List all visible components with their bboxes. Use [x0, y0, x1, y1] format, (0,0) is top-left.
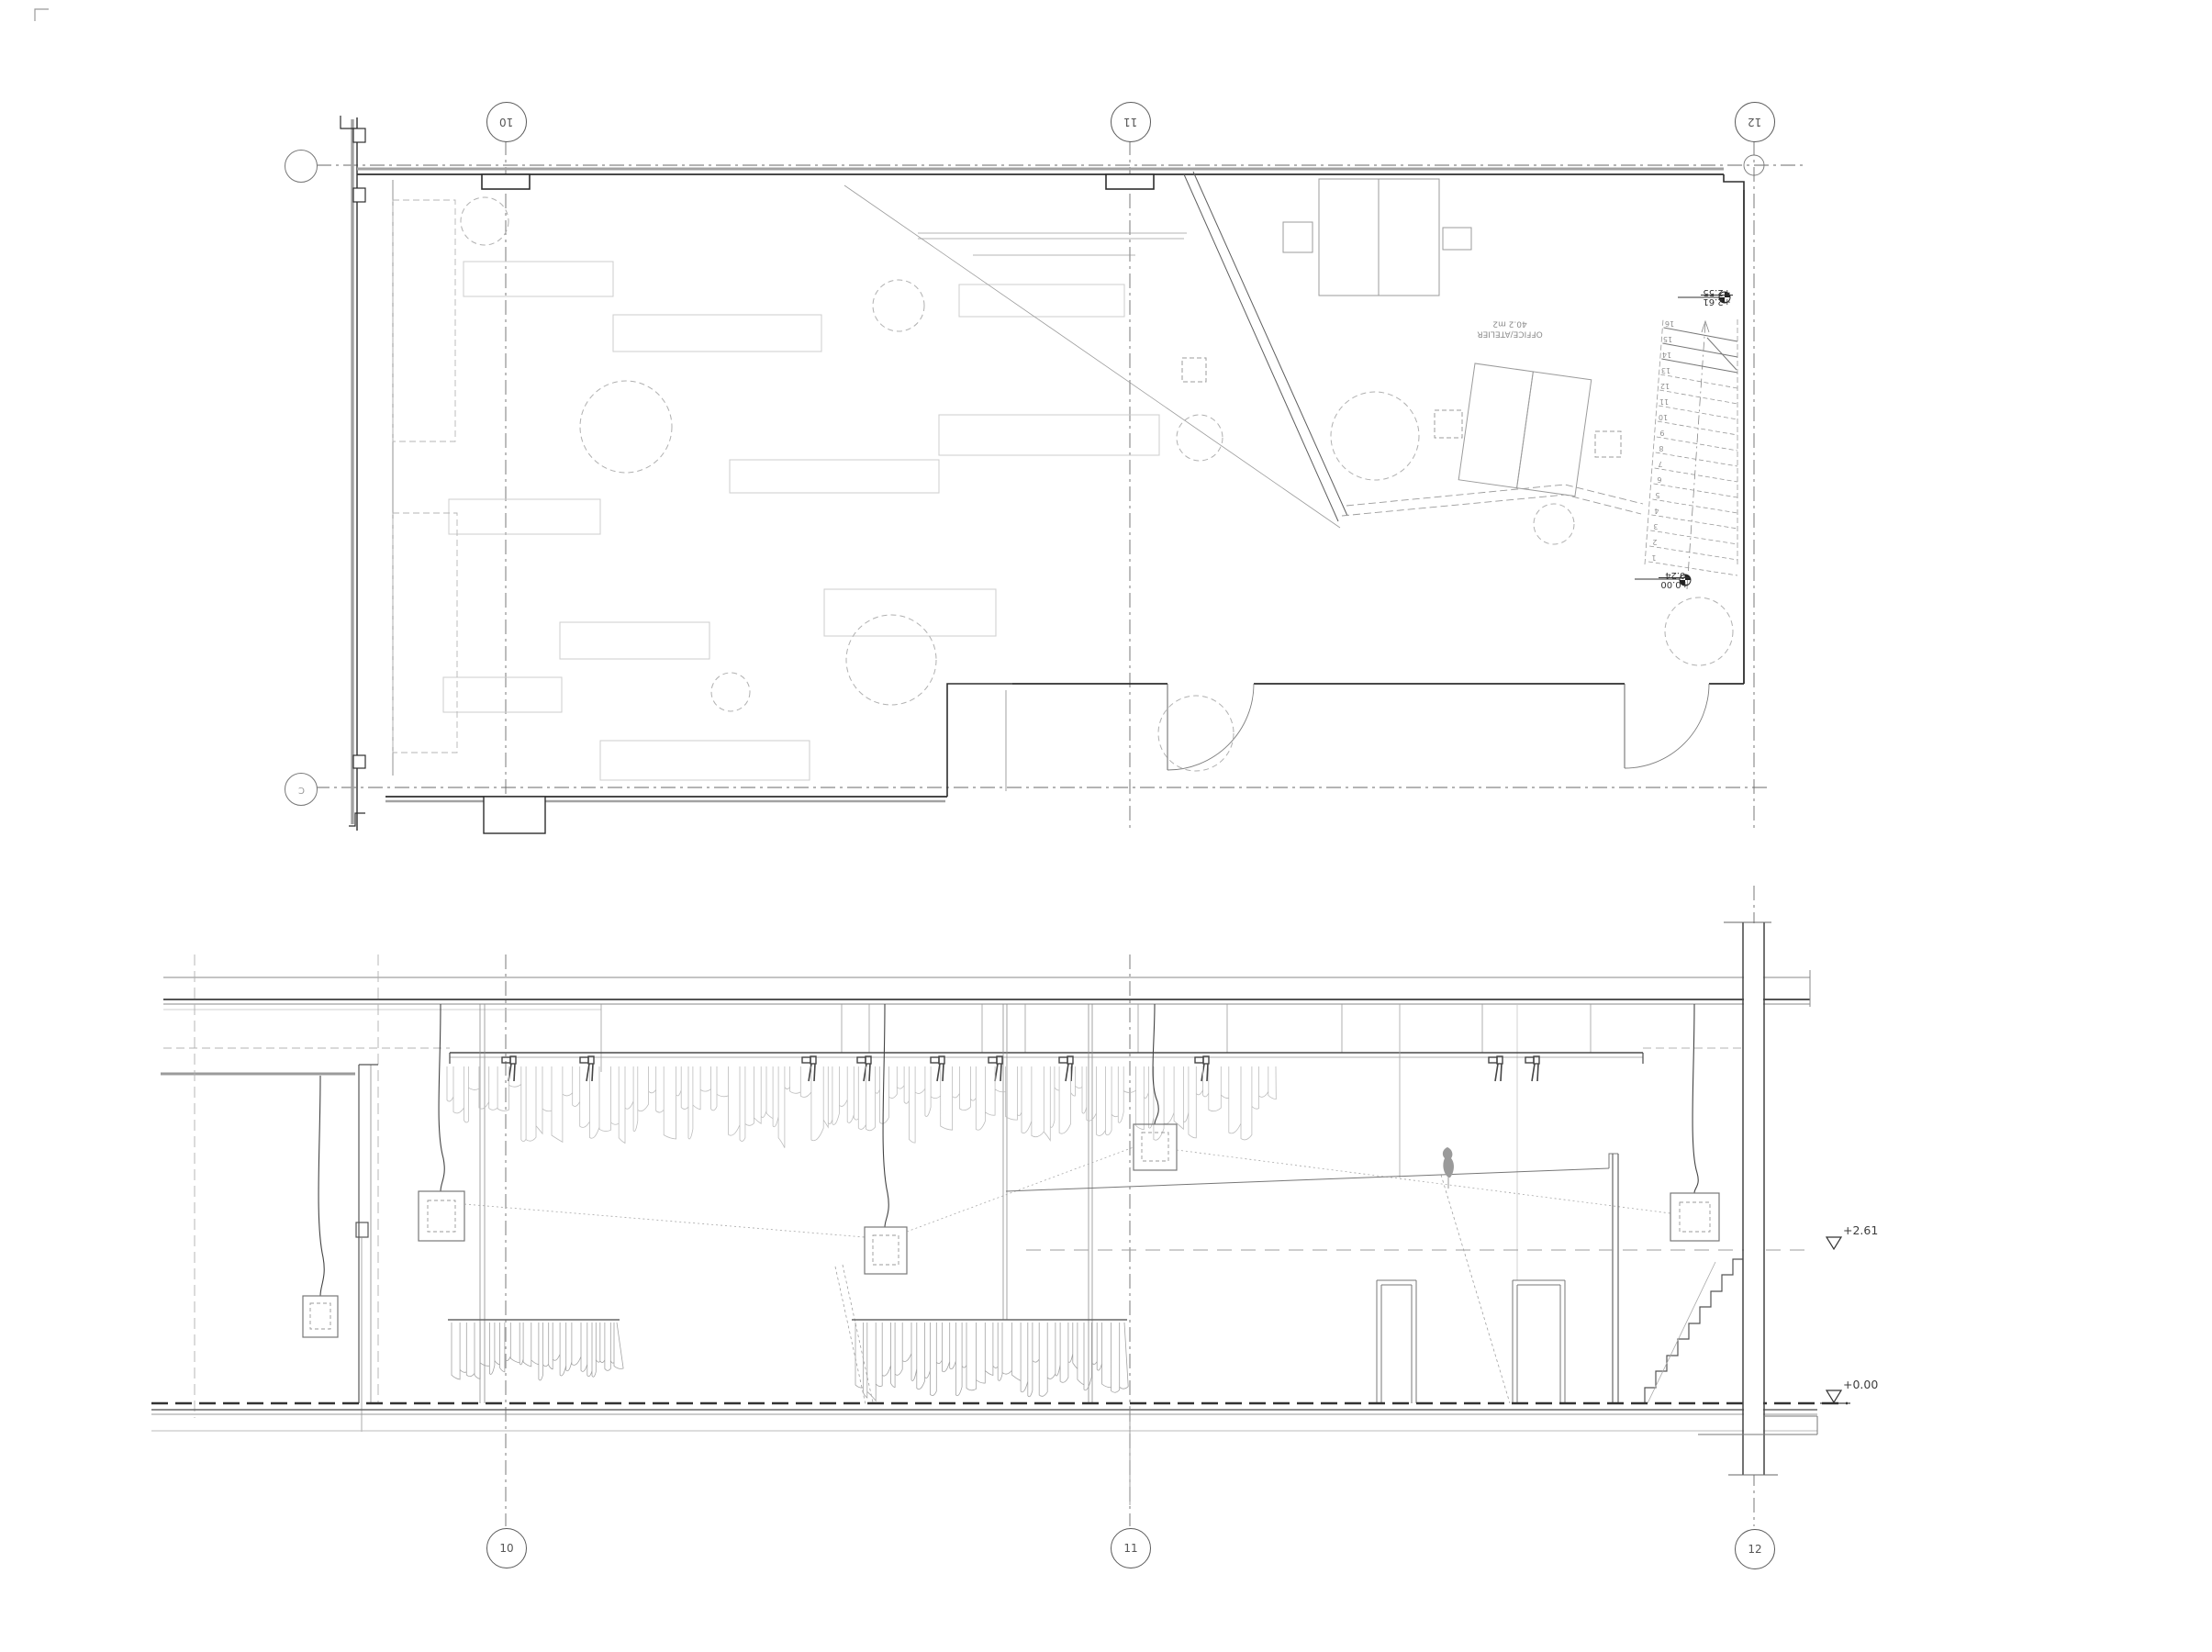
plan-stair	[1645, 319, 1737, 589]
stair-tread-number: 11	[1658, 397, 1670, 406]
stair-tread-line	[1652, 499, 1737, 513]
sheet-corner-mark	[35, 9, 49, 21]
door-opening	[1377, 1280, 1416, 1403]
stair-tread-number: 2	[1648, 538, 1661, 546]
stair-tread-number: 8	[1655, 444, 1668, 452]
grid-bubble-bottom-11: 11	[1111, 1528, 1151, 1568]
stair-tread-number: 6	[1653, 475, 1666, 484]
grid-bubble-label: 10	[499, 116, 513, 128]
stair-tread-number: 5	[1651, 491, 1664, 499]
stair-tread-line	[1664, 328, 1738, 341]
row-bubble-top	[285, 150, 318, 183]
pendant-light-icon	[1134, 1004, 1177, 1170]
stair-tread-number: 3	[1649, 522, 1662, 530]
grid12-column	[1698, 922, 1817, 1475]
stair-tread-number: 15	[1661, 335, 1674, 343]
plan-angled-partition	[844, 172, 1643, 528]
stair-tread-line	[1650, 530, 1737, 544]
stair-tread-number: 1	[1648, 553, 1660, 562]
stair-tread-number: 7	[1654, 460, 1667, 468]
stair-tread-number: 16	[1663, 319, 1676, 328]
stair-tread-number: 4	[1650, 507, 1663, 515]
stair-tread-line	[1662, 343, 1737, 357]
grid-bubble-bottom-12: 12	[1735, 1529, 1775, 1569]
drawing-sheet: 10 11 12 C +2.61 +2.55 +0.00 -0.24 OFFIC…	[0, 0, 2212, 1652]
lighting-track	[163, 1048, 1741, 1064]
stair-tread-number: 10	[1657, 413, 1670, 421]
mezzanine	[1006, 1147, 1618, 1403]
stair-tread-line	[1660, 374, 1737, 388]
pendant-light-icon	[1670, 1004, 1719, 1241]
stair-tread-number: 14	[1660, 351, 1673, 359]
level-value-secondary: -0.24	[1663, 570, 1691, 581]
pendant-wires	[464, 1147, 1670, 1237]
section-level-261: +2.61	[1843, 1223, 1878, 1237]
plan-walls	[341, 116, 1744, 833]
grid-bubble-top-10: 10	[486, 102, 527, 142]
stair-tread-line	[1659, 390, 1737, 404]
plan-round-tables	[461, 197, 1733, 771]
section-clerestory	[601, 1004, 1591, 1280]
stair-tread-line	[1649, 546, 1737, 560]
stair-tread-line	[1654, 484, 1738, 497]
grid-bubble-top-11: 11	[1111, 102, 1151, 142]
section-levels	[1026, 1237, 1850, 1403]
pendant-light-icon	[419, 1004, 464, 1241]
pendant-light-icon	[865, 1004, 907, 1274]
stair-tread-line	[1655, 468, 1737, 482]
row-bubble-c: C	[285, 773, 318, 806]
stair-tread-number: 12	[1659, 382, 1671, 390]
section-left-room	[195, 954, 378, 1432]
stair-tread-line	[1658, 421, 1737, 435]
person-figure-icon	[1443, 1147, 1454, 1178]
stair-tread-line	[1661, 359, 1737, 373]
section-stair	[1645, 1259, 1743, 1403]
office-desk	[1458, 363, 1592, 497]
section-roof	[161, 970, 1810, 1074]
stair-tread-number: 9	[1656, 429, 1669, 437]
track-spotlights	[502, 1056, 1539, 1081]
door-opening	[1513, 1280, 1565, 1403]
plan-grid-lines	[315, 140, 1806, 831]
plan-furniture-faint	[443, 262, 1159, 780]
building-section	[151, 886, 1850, 1526]
wall-lamp-icon	[356, 1222, 368, 1237]
room-label: OFFICE/ATELIER 40.2 m2	[1463, 318, 1557, 339]
stair-tread-line	[1659, 406, 1737, 419]
room-name: OFFICE/ATELIER	[1477, 328, 1542, 338]
level-value-secondary: +2.55	[1701, 287, 1733, 298]
grid-bubble-label: 12	[1748, 116, 1761, 128]
grid-bubble-top-12: 12	[1735, 102, 1775, 142]
floor-slab	[151, 1403, 1848, 1505]
pendant-light-icon	[303, 1076, 338, 1337]
plan-dashed-zones	[393, 200, 457, 753]
plan-upper-level: +2.61 +2.55	[1676, 283, 1733, 310]
stair-tread-line	[1651, 515, 1737, 529]
section-level-000: +0.00	[1843, 1378, 1878, 1391]
room-area: 40.2 m2	[1477, 318, 1542, 328]
hanging-textiles	[447, 1066, 1276, 1148]
grid-bubble-label: 11	[1123, 116, 1137, 128]
plan-lower-level: +0.00 -0.24	[1632, 565, 1691, 593]
grid-bubble-bottom-10: 10	[486, 1528, 527, 1568]
stair-tread-number: 13	[1659, 366, 1672, 374]
clothes-racks	[448, 1320, 1128, 1401]
floor-plan	[315, 116, 1806, 833]
drawing-canvas	[0, 0, 2212, 1652]
door-swing-arcs	[1167, 684, 1709, 770]
